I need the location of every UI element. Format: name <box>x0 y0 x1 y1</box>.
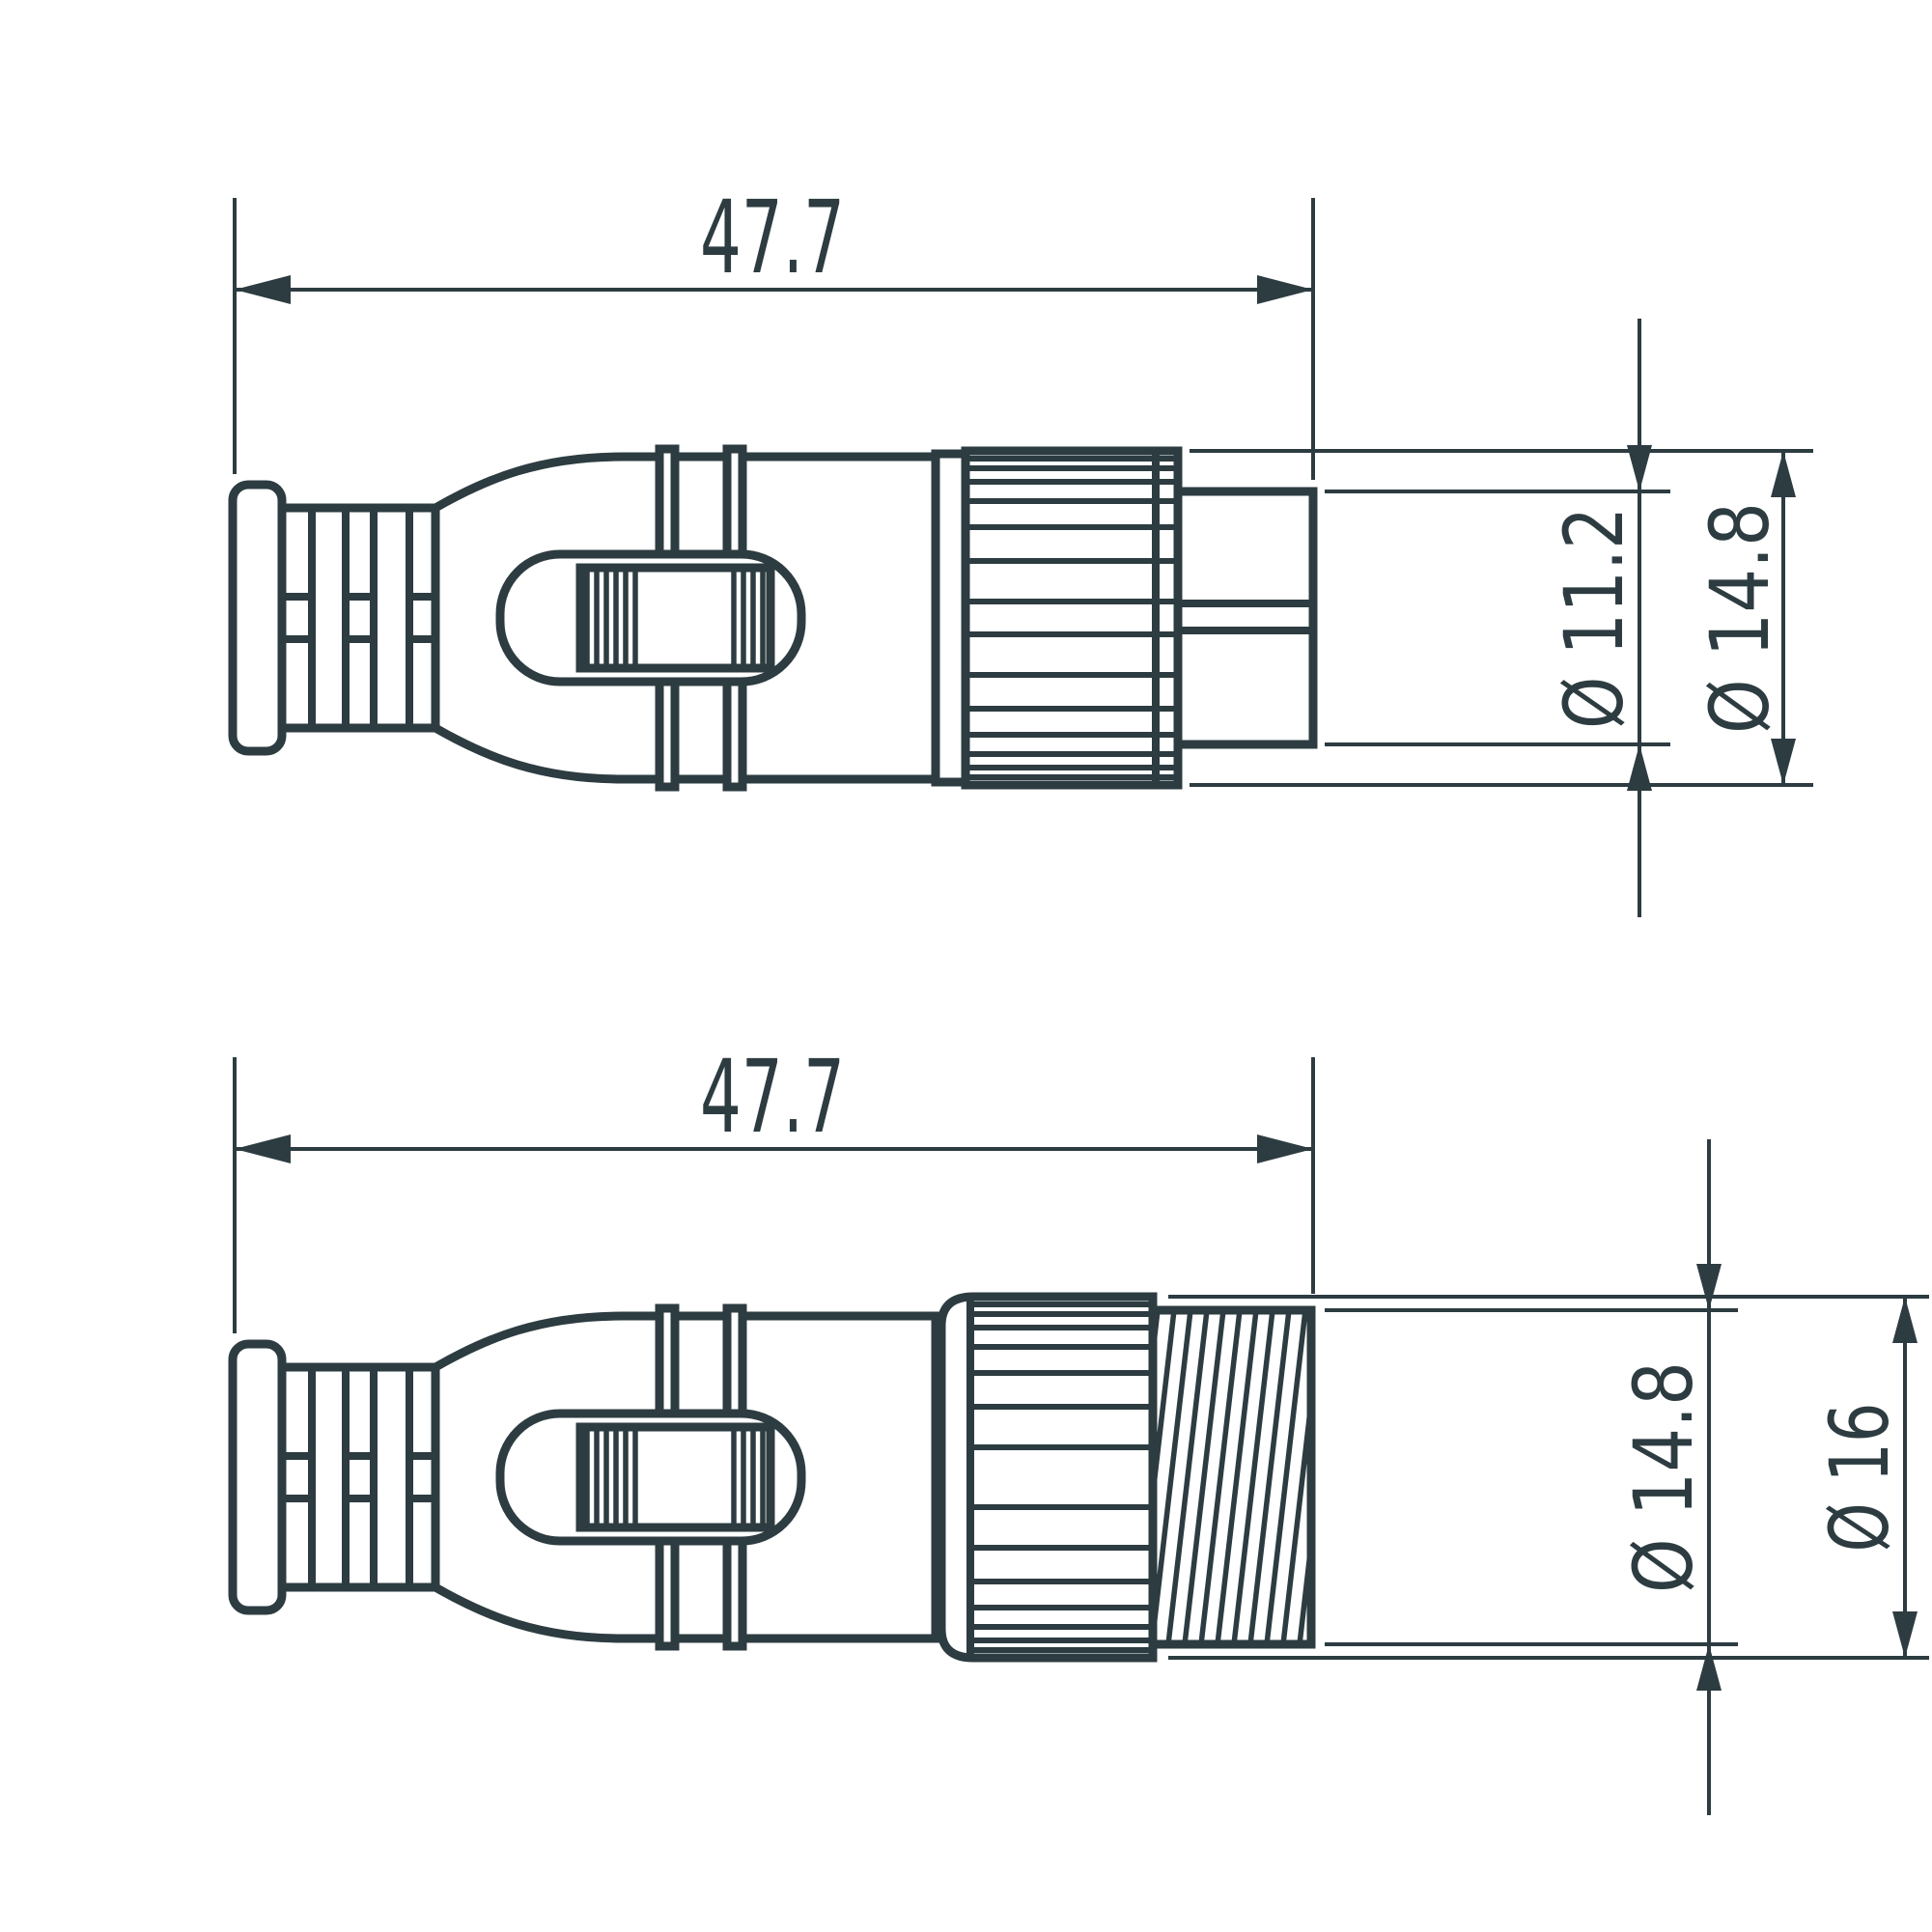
arrowhead-left <box>235 275 291 304</box>
dim-length-bottom: 47.7 <box>235 1038 1313 1333</box>
arrowhead-left <box>235 1134 291 1163</box>
dim-diameter-thread-bottom: Ø 14.8 <box>1325 1139 1738 1815</box>
arrowhead-bottom <box>1696 1644 1722 1691</box>
connector-dimension-drawing: 47.7 <box>0 0 1932 1932</box>
drawing-canvas: 47.7 <box>0 0 1932 1932</box>
arrowhead-top <box>1892 1297 1918 1343</box>
arrowhead-top <box>1771 451 1796 497</box>
coupling-ring <box>941 1297 1153 1658</box>
dim-label-diameter-large: Ø 16 <box>1812 1403 1907 1553</box>
dim-label-length: 47.7 <box>700 179 845 296</box>
coupling-nut <box>966 451 1178 785</box>
arrowhead-bottom <box>1771 739 1796 785</box>
arrowhead-right <box>1257 1134 1313 1163</box>
cable-end-cap <box>233 485 282 751</box>
body-collar <box>936 454 966 782</box>
arrowhead-bottom <box>1892 1611 1918 1658</box>
latch <box>500 1414 801 1541</box>
strain-relief-bellows <box>282 1367 435 1587</box>
view-top-connector: 47.7 <box>233 179 1813 917</box>
dim-label-diameter-small: Ø 11.2 <box>1547 507 1641 729</box>
dim-label-diameter-small: Ø 14.8 <box>1616 1361 1711 1593</box>
male-pin-sleeve <box>1178 491 1313 744</box>
arrowhead-top <box>1696 1264 1722 1310</box>
view-bottom-connector: 47.7 <box>233 1038 1929 1815</box>
dim-label-length: 47.7 <box>700 1038 845 1156</box>
dim-diameter-pin-top: Ø 11.2 <box>1325 319 1670 917</box>
dim-length-top: 47.7 <box>235 179 1313 480</box>
arrowhead-right <box>1257 275 1313 304</box>
dim-label-diameter-large: Ø 14.8 <box>1693 502 1787 734</box>
latch <box>500 554 801 682</box>
cable-end-cap <box>233 1344 282 1610</box>
strain-relief-bellows <box>282 508 435 728</box>
